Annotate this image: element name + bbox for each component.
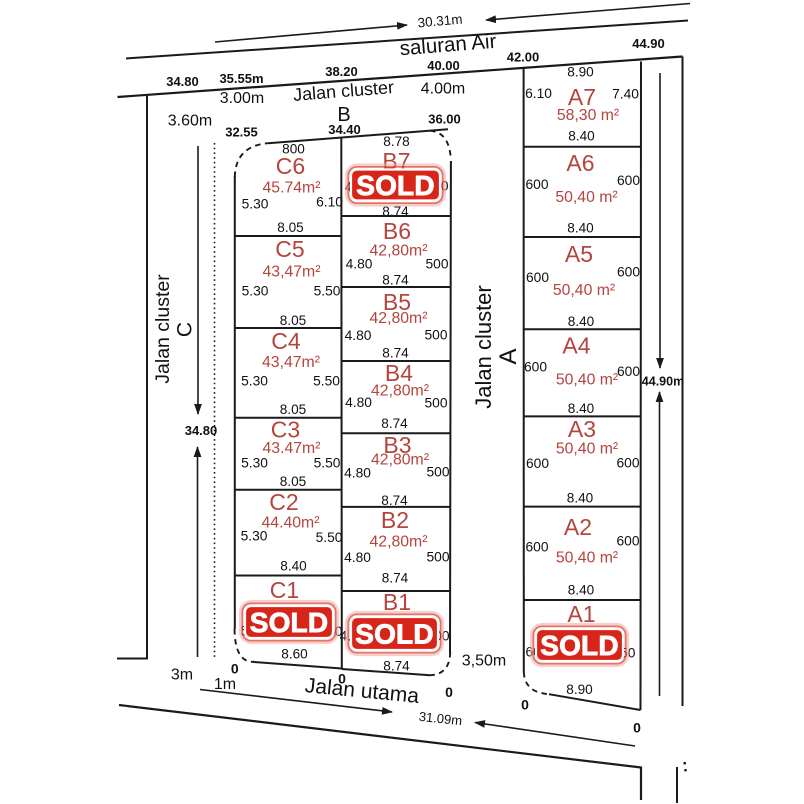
svg-text:SOLD: SOLD	[250, 607, 329, 638]
svg-text:600: 600	[616, 456, 639, 471]
svg-text:600: 600	[617, 173, 640, 188]
svg-text:600: 600	[526, 456, 549, 471]
svg-text:0: 0	[445, 684, 453, 700]
svg-text:43.47m²: 43.47m²	[263, 440, 321, 457]
svg-text:4.80: 4.80	[344, 466, 371, 481]
svg-text:40.00: 40.00	[427, 58, 460, 73]
svg-text:5.50: 5.50	[314, 456, 341, 471]
svg-text:8.40: 8.40	[568, 583, 595, 598]
svg-text:C1: C1	[270, 577, 299, 603]
svg-text:A: A	[495, 348, 522, 364]
svg-text:8.74: 8.74	[382, 571, 409, 586]
svg-text:50,40 m²: 50,40 m²	[556, 441, 618, 458]
svg-text:44.90m: 44.90m	[642, 375, 684, 389]
svg-text:34.80: 34.80	[185, 423, 218, 438]
svg-text:8.05: 8.05	[280, 313, 306, 328]
svg-text:58,30 m²: 58,30 m²	[557, 107, 619, 124]
svg-text:34.80: 34.80	[166, 74, 199, 89]
svg-text:600: 600	[526, 270, 549, 285]
svg-text:500: 500	[426, 465, 449, 480]
svg-text:0: 0	[633, 720, 641, 736]
svg-text:8.90: 8.90	[566, 682, 593, 697]
svg-text:C4: C4	[271, 328, 301, 354]
svg-text:4.00m: 4.00m	[421, 81, 465, 98]
svg-text:500: 500	[425, 257, 448, 272]
svg-text:600: 600	[524, 360, 547, 375]
svg-text:8.40: 8.40	[280, 559, 307, 574]
svg-text:6.10: 6.10	[316, 195, 343, 210]
svg-text:42,80m²: 42,80m²	[371, 452, 429, 469]
svg-text:42,80m²: 42,80m²	[370, 534, 428, 551]
svg-text:3.60m: 3.60m	[168, 113, 212, 130]
svg-text:Jalan cluster: Jalan cluster	[152, 274, 174, 384]
svg-text:5.50: 5.50	[314, 284, 341, 299]
svg-text:42.00: 42.00	[507, 50, 540, 65]
svg-text:8.90: 8.90	[567, 65, 594, 80]
svg-text:5.30: 5.30	[241, 374, 268, 389]
svg-text:3.00m: 3.00m	[220, 90, 264, 107]
svg-text:8.74: 8.74	[383, 659, 410, 674]
svg-text:8.74: 8.74	[381, 416, 408, 431]
svg-text:C3: C3	[271, 417, 300, 443]
svg-text:SOLD: SOLD	[356, 170, 435, 201]
svg-text:A4: A4	[562, 333, 590, 359]
svg-text:500: 500	[426, 550, 449, 565]
svg-text:3,50m: 3,50m	[462, 653, 506, 670]
svg-text:0: 0	[231, 661, 239, 677]
svg-text:5.50: 5.50	[316, 530, 343, 545]
svg-text:8.74: 8.74	[382, 346, 409, 361]
svg-text:3m: 3m	[171, 667, 193, 684]
svg-text:4.80: 4.80	[346, 257, 373, 272]
svg-text:5.30: 5.30	[242, 284, 269, 299]
svg-text:42,80m²: 42,80m²	[371, 383, 429, 400]
svg-text:8.05: 8.05	[280, 402, 306, 417]
svg-text:6.10: 6.10	[525, 86, 552, 101]
svg-text:500: 500	[424, 396, 447, 411]
svg-text:600: 600	[617, 364, 640, 379]
svg-text:SOLD: SOLD	[355, 619, 434, 650]
svg-text:SOLD: SOLD	[540, 630, 619, 661]
svg-text:4.80: 4.80	[344, 550, 371, 565]
svg-text:8.40: 8.40	[568, 314, 595, 329]
svg-text:B6: B6	[383, 218, 411, 244]
svg-text:600: 600	[616, 534, 639, 549]
svg-text:C5: C5	[275, 236, 304, 262]
svg-text:C: C	[173, 322, 196, 337]
svg-text:A3: A3	[568, 416, 596, 442]
svg-text:50,40 m²: 50,40 m²	[555, 189, 617, 206]
svg-text:38.20: 38.20	[325, 64, 358, 79]
svg-text:34.40: 34.40	[328, 122, 361, 137]
svg-text:0: 0	[521, 697, 529, 713]
svg-text:8.74: 8.74	[381, 493, 408, 508]
svg-text:5.30: 5.30	[241, 456, 268, 471]
svg-text:8.60: 8.60	[281, 647, 308, 662]
svg-text:50,40 m²: 50,40 m²	[556, 550, 618, 567]
svg-text:8.40: 8.40	[568, 401, 595, 416]
svg-text:A2: A2	[564, 514, 592, 540]
svg-text:C6: C6	[276, 153, 305, 179]
svg-text:1m: 1m	[214, 676, 236, 693]
svg-text:8.05: 8.05	[280, 474, 306, 489]
svg-text:45.74m²: 45.74m²	[263, 180, 321, 197]
svg-text:5.50: 5.50	[313, 374, 340, 389]
svg-text:600: 600	[617, 265, 640, 280]
svg-text:B2: B2	[381, 507, 409, 533]
svg-text:7.40: 7.40	[612, 87, 639, 102]
svg-text:4.80: 4.80	[345, 395, 372, 410]
svg-text:C2: C2	[269, 489, 298, 515]
svg-text:A5: A5	[565, 241, 593, 267]
svg-text:5.30: 5.30	[242, 197, 269, 212]
svg-text:43,47m²: 43,47m²	[262, 354, 320, 371]
svg-text:44.40m²: 44.40m²	[262, 515, 320, 532]
svg-text:35.55m: 35.55m	[219, 71, 263, 86]
svg-text:500: 500	[424, 328, 447, 343]
svg-text:5.30: 5.30	[241, 529, 268, 544]
svg-text:50,40 m²: 50,40 m²	[556, 372, 618, 389]
svg-text:42,80m²: 42,80m²	[370, 243, 428, 260]
svg-text:4.80: 4.80	[345, 328, 372, 343]
svg-text:A6: A6	[566, 150, 594, 176]
svg-text:36.00: 36.00	[428, 112, 461, 127]
svg-text:8.74: 8.74	[382, 273, 409, 288]
svg-text:8.05: 8.05	[277, 220, 303, 235]
svg-text:600: 600	[525, 177, 548, 192]
svg-text:43,47m²: 43,47m²	[263, 264, 321, 281]
svg-text:8.40: 8.40	[567, 221, 594, 236]
svg-text:8.40: 8.40	[567, 491, 594, 506]
svg-text:42,80m²: 42,80m²	[370, 310, 428, 327]
svg-text:32.55: 32.55	[225, 125, 258, 140]
svg-text:8.78: 8.78	[383, 134, 409, 149]
svg-text:50,40 m²: 50,40 m²	[553, 282, 615, 299]
svg-text:Jalan cluster: Jalan cluster	[471, 285, 496, 409]
svg-text:44.90: 44.90	[632, 36, 665, 51]
svg-text:600: 600	[525, 540, 548, 555]
svg-text:8.40: 8.40	[568, 129, 595, 144]
